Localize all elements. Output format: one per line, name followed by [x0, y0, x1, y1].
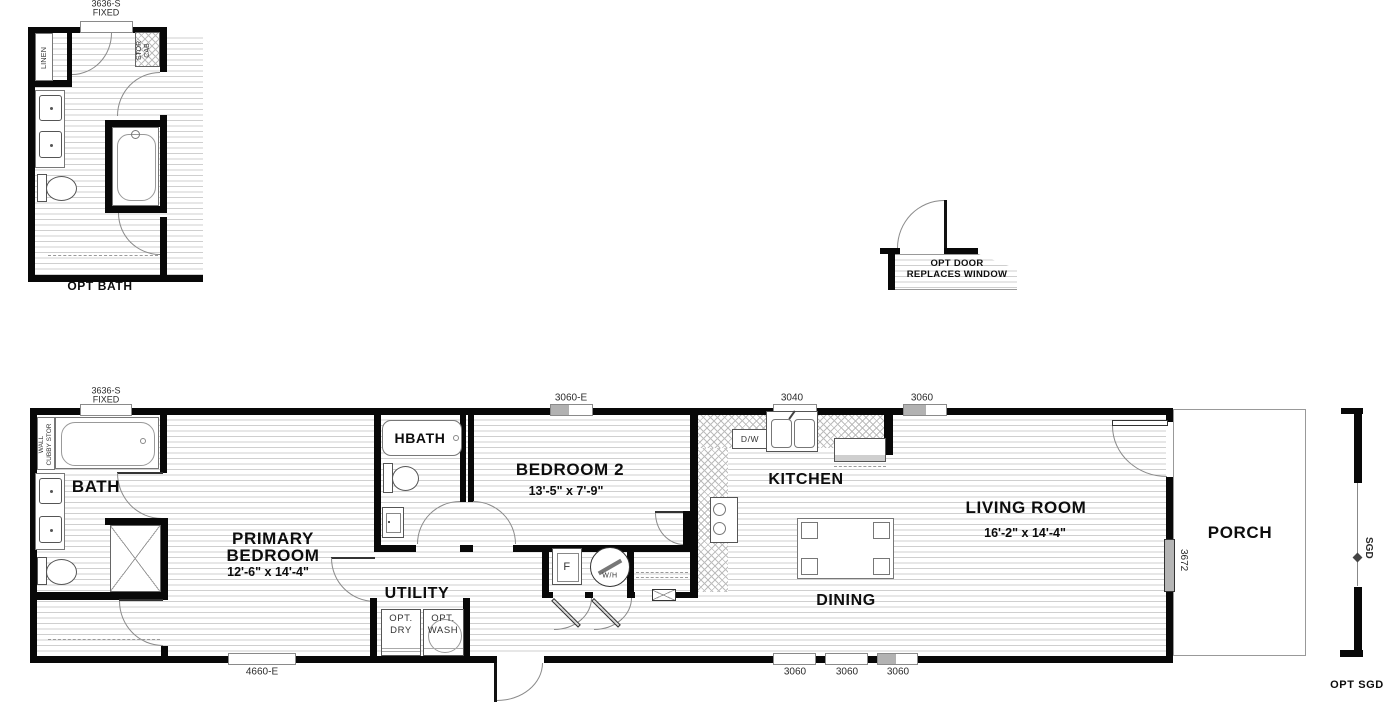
window-top-3636s	[80, 404, 132, 416]
hall-wall-seg1	[374, 545, 416, 552]
closet-wall-stub	[161, 646, 168, 656]
main-wall-top	[30, 408, 1173, 415]
optbath-tubroom-wall-top	[105, 120, 163, 127]
optbath-wall-left	[28, 27, 35, 282]
sgd-wall-bottom-v	[1354, 587, 1362, 650]
room-dims-living: 16'-2" x 14'-4"	[984, 526, 1066, 540]
sgd-marker	[1353, 553, 1363, 563]
window-top-3040-label: 3040	[781, 393, 803, 404]
bath-toilet-bowl	[46, 559, 77, 585]
pantry-shelf-1	[636, 572, 688, 574]
optbath-tub	[112, 127, 159, 206]
shower-pan	[110, 525, 161, 592]
water-heater	[590, 547, 630, 587]
refrigerator	[834, 438, 886, 462]
sliding-door-label: 3672	[1178, 549, 1189, 571]
window-bottom-4660e-label: 4660-E	[246, 667, 278, 678]
optbath-toilet-bowl	[46, 176, 77, 201]
range	[710, 497, 738, 543]
optbath-showerhead-icon	[131, 130, 140, 139]
stor-cab-label: STOR CAB	[136, 33, 161, 68]
refrigerator-front-dash	[834, 466, 886, 468]
opt-dryer-label: OPT.DRY	[389, 613, 413, 637]
main-wall-right-seg2	[1166, 477, 1173, 540]
dishwasher-label: D/W	[741, 434, 759, 444]
sgd-label: SGD	[1363, 537, 1374, 559]
optbath-wall-bottomright	[160, 217, 167, 277]
window-top-3636s-label: 3636-SFIXED	[91, 387, 120, 406]
room-dims-primary: 12'-6" x 14'-4"	[227, 565, 309, 579]
room-dims-bedroom2: 13'-5" x 7'-9"	[529, 484, 604, 498]
shower-wall-top	[105, 518, 168, 525]
sgd-track-line	[1357, 483, 1358, 586]
kitchen-sink	[766, 411, 818, 452]
optbath-window-label: 3636-SFIXED	[91, 0, 120, 18]
room-label-porch: PORCH	[1208, 523, 1272, 543]
window-bottom-3060-3	[877, 653, 918, 665]
opt-washer-label: OPT.WASH	[428, 613, 459, 637]
sliding-glass-door-3672	[1164, 539, 1175, 592]
kitchen-wall-left	[690, 408, 698, 598]
main-wall-bottom	[30, 656, 1173, 663]
window-top-3060-label: 3060	[911, 393, 933, 404]
optdoor-leaf	[944, 200, 947, 248]
optdoor-wall-right	[944, 248, 978, 254]
room-label-living: LIVING ROOM	[966, 498, 1087, 518]
room-label-kitchen: KITCHEN	[768, 471, 843, 489]
optbath-window-3636s	[80, 21, 133, 33]
wall-cubby-label: WALLCUBBY STOR	[38, 418, 55, 471]
optdoor-arc	[897, 200, 944, 248]
optdoor-caption: OPT DOORREPLACES WINDOW	[907, 259, 1008, 281]
optbath-tubroom-wall-right	[160, 115, 167, 213]
pantry-shelf-2	[636, 577, 688, 579]
faucet-icon	[788, 410, 795, 419]
utility-closet-wall-left	[542, 545, 549, 598]
optdoor-wall-jamb	[888, 254, 895, 290]
window-top-3060e	[550, 404, 593, 416]
room-label-hbath: HBATH	[395, 430, 446, 446]
main-wall-right-seg3	[1166, 591, 1173, 656]
primary-garden-tub	[55, 417, 159, 469]
window-top-3060	[903, 404, 947, 416]
utility-alcove-wall-right	[463, 598, 470, 656]
room-label-utility: UTILITY	[385, 585, 450, 603]
hbath-vanity	[382, 507, 404, 538]
dining-table	[797, 518, 894, 579]
optbath-storcab-wall	[160, 27, 167, 72]
hall-wall-stub	[460, 545, 473, 552]
window-bottom-3060-3-label: 3060	[887, 667, 909, 678]
utility-alcove-wall-left	[370, 598, 377, 656]
hbath-wall-left	[374, 415, 381, 551]
optbath-closet-rod	[48, 255, 158, 257]
optbath-tubroom-wall-left	[105, 120, 112, 213]
hbath-toilet-bowl	[392, 466, 419, 491]
window-bottom-4660e	[228, 653, 296, 665]
bath-sink-1	[39, 478, 62, 504]
bath-sink-2	[39, 516, 62, 543]
room-label-bedroom2: BEDROOM 2	[516, 460, 624, 480]
floorplan-canvas: { "opt_bath_detail": { "window_label": […	[0, 0, 1400, 702]
closet-stub-1	[545, 592, 553, 598]
wall-cubby-storage: WALLCUBBY STOR	[37, 417, 55, 470]
pantry-cabinet	[652, 589, 676, 601]
window-bottom-3060-2	[825, 653, 868, 665]
shower-wall-right	[161, 518, 168, 598]
stor-cab: STOR CAB	[135, 32, 160, 67]
bath-wall-right-of-tub	[160, 415, 167, 473]
room-label-dining: DINING	[816, 592, 876, 610]
linen-closet: LINEN	[35, 33, 53, 81]
sgd-caption: OPT SGD	[1330, 679, 1384, 691]
optbath-tubroom-wall-bottom	[105, 206, 167, 213]
hbath-b2-wall-b	[468, 415, 474, 502]
front-door-arc	[497, 663, 543, 701]
optbath-sink-1	[39, 95, 62, 121]
window-bottom-3060-1-label: 3060	[784, 667, 806, 678]
primary-closet-rod	[48, 639, 160, 641]
optbath-sink-2	[39, 131, 62, 158]
window-top-3060e-label: 3060-E	[555, 393, 587, 404]
sgd-wall-top-v	[1354, 414, 1362, 483]
room-label-bath: BATH	[72, 477, 120, 497]
room-label-primary-2: BEDROOM	[227, 546, 320, 566]
sgd-wall-bottom-h	[1340, 650, 1363, 657]
linen-label: LINEN	[35, 34, 53, 82]
optbath-caption: OPT BATH	[67, 279, 132, 293]
window-bottom-3060-2-label: 3060	[836, 667, 858, 678]
furnace-label: F	[563, 561, 570, 573]
water-heater-label: W/H	[602, 573, 617, 580]
window-bottom-3060-1	[773, 653, 816, 665]
